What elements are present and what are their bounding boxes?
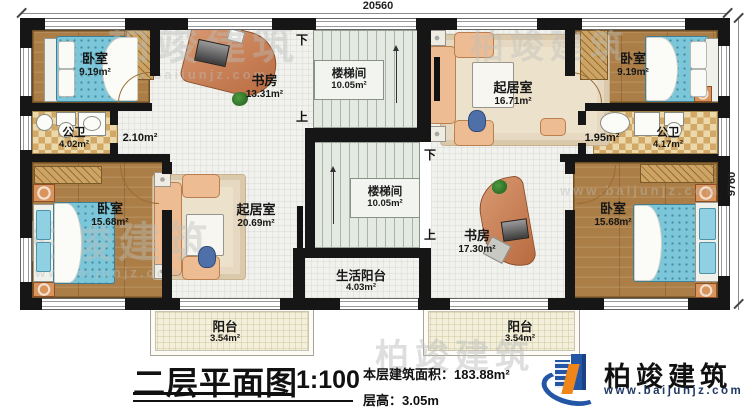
room-label-bedroom-br: 卧室 15.68m² (578, 202, 648, 228)
room-name: 阳台 (185, 320, 265, 334)
brand-logo-icon (543, 352, 599, 402)
room-area: 17.30m² (437, 244, 517, 255)
wall (560, 154, 730, 162)
stair-arrow-head (330, 166, 336, 172)
wall (150, 30, 160, 76)
sink (600, 112, 630, 134)
room-area: 4.02m² (40, 140, 108, 151)
wall (110, 111, 118, 125)
wall (20, 154, 170, 162)
dimension-line-right (738, 18, 739, 310)
room-label-bedroom-bl: 卧室 15.68m² (75, 202, 145, 228)
wall (162, 210, 172, 298)
room-area: 16.71m² (468, 96, 558, 107)
balcony-door (450, 298, 548, 310)
wardrobe (34, 166, 102, 184)
nightstand (695, 283, 717, 298)
stair-down-label: 下 (424, 146, 436, 163)
dimension-line-top (22, 13, 728, 14)
floor-area-label: 本层建筑面积： (363, 367, 454, 382)
logo-swoosh (538, 365, 603, 411)
room-label-living-tr: 起居室 16.71m² (468, 81, 558, 107)
room-name: 卧室 (593, 52, 673, 67)
floor-area-value: 183.88m² (454, 367, 510, 382)
room-area: 10.05m² (367, 199, 402, 210)
tv (434, 57, 440, 101)
room-label-study-tl: 书房 13.31m² (222, 74, 307, 100)
window (188, 18, 272, 30)
wall (305, 128, 315, 258)
room-name: 起居室 (468, 81, 558, 96)
dimension-top: 20560 (338, 0, 418, 12)
wall (162, 162, 172, 174)
window (340, 298, 418, 310)
title-underline (133, 400, 353, 402)
room-label-bedroom-tr: 卧室 9.19m² (593, 52, 673, 78)
window (457, 18, 537, 30)
balcony-door (180, 298, 280, 310)
wall (419, 248, 431, 310)
room-label-living-bl: 起居室 20.69m² (212, 203, 300, 229)
bed-pillow (690, 69, 707, 97)
stair-arrow (396, 51, 397, 103)
nightstand (33, 184, 55, 202)
wall (565, 162, 575, 174)
stair-up-label: 上 (296, 108, 308, 125)
room-area: 4.03m² (305, 283, 417, 294)
window (582, 18, 685, 30)
room-name: 卧室 (75, 202, 145, 217)
window (316, 18, 416, 30)
window (20, 116, 32, 150)
floor-height-value: 3.05m (402, 393, 439, 408)
room-label-balcony-right: 阳台 3.54m² (480, 320, 560, 345)
wall (565, 30, 575, 76)
stairwell-label-box: 楼梯间 10.05m² (314, 60, 384, 100)
wall (585, 103, 730, 111)
room-label-study-br: 书房 17.30m² (437, 229, 517, 255)
brand-website: www.baijunjz.com (604, 385, 743, 397)
room-label-service-balcony: 生活阳台 4.03m² (305, 269, 417, 294)
floor-height-text: 层高：3.05m (363, 390, 439, 409)
title-underline (133, 392, 285, 395)
room-name: 公卫 (634, 127, 702, 140)
bed-pillow (699, 208, 716, 240)
room-name: 书房 (437, 229, 517, 244)
nightstand (33, 282, 55, 297)
dimension-value: 9760 (726, 172, 738, 196)
stair-up-label: 上 (424, 226, 436, 243)
wall (305, 248, 431, 258)
room-name: 公卫 (40, 127, 108, 140)
room-area: 9.19m² (55, 67, 135, 78)
wall (578, 111, 586, 125)
hall-area-label-left: 2.10m² (108, 132, 172, 144)
window (718, 46, 730, 96)
plan-title: 二层平面图 (133, 358, 298, 404)
wall (305, 128, 431, 142)
armchair (454, 32, 494, 58)
room-area: 9.19m² (593, 67, 673, 78)
window (20, 48, 32, 96)
nightstand (695, 184, 717, 202)
dimension-value: 20560 (363, 0, 394, 12)
hall-area-label-right: 1.95m² (570, 132, 634, 144)
room-label-bath-left: 公卫 4.02m² (40, 127, 108, 151)
sofa (428, 46, 456, 124)
wall (417, 18, 431, 138)
room-label-bedroom-tl: 卧室 9.19m² (55, 52, 135, 78)
room-area: 15.68m² (75, 217, 145, 228)
room-area: 2.10m² (108, 132, 172, 144)
window (718, 206, 730, 276)
window (42, 298, 125, 310)
person-figure (198, 246, 216, 268)
room-name: 阳台 (480, 320, 560, 334)
window (718, 118, 730, 156)
floor-height-label: 层高： (363, 393, 402, 408)
room-area: 10.05m² (331, 81, 366, 92)
plan-scale: 1:100 (296, 366, 360, 395)
room-label-bath-right: 公卫 4.17m² (634, 127, 702, 151)
floor-plan-page: 柏竣建筑 www.baijunjz.com 柏竣建筑 柏竣建筑 www.baij… (0, 0, 750, 416)
dimension-right: 9760 (726, 164, 738, 204)
room-name: 卧室 (578, 202, 648, 217)
window (20, 238, 32, 282)
room-area: 1.95m² (570, 132, 634, 144)
stair-down-label: 下 (296, 31, 308, 48)
wall (293, 248, 305, 310)
room-label-balcony-left: 阳台 3.54m² (185, 320, 265, 345)
window (45, 18, 125, 30)
wall (20, 103, 152, 111)
room-name: 书房 (222, 74, 307, 89)
room-name: 生活阳台 (305, 269, 417, 283)
person-figure (468, 110, 486, 132)
room-area: 20.69m² (212, 218, 300, 229)
room-area: 3.54m² (185, 334, 265, 345)
wall (565, 210, 575, 298)
wardrobe (640, 164, 714, 183)
ottoman (540, 118, 566, 136)
bed-pillow (36, 210, 51, 240)
bed-pillow (699, 242, 716, 274)
room-area: 15.68m² (578, 217, 648, 228)
floor-area-text: 本层建筑面积：183.88m² (363, 364, 510, 383)
room-name: 起居室 (212, 203, 300, 218)
room-area: 13.31m² (222, 89, 307, 100)
bed-pillow (36, 242, 51, 272)
room-area: 4.17m² (634, 140, 702, 151)
window (604, 298, 688, 310)
stair-arrow (333, 172, 334, 224)
bed-pillow (690, 41, 707, 69)
armchair (182, 174, 220, 198)
room-name: 卧室 (55, 52, 135, 67)
stair-arrow-head (393, 45, 399, 51)
stairwell-label-box: 楼梯间 10.05m² (350, 178, 420, 218)
room-area: 3.54m² (480, 334, 560, 345)
